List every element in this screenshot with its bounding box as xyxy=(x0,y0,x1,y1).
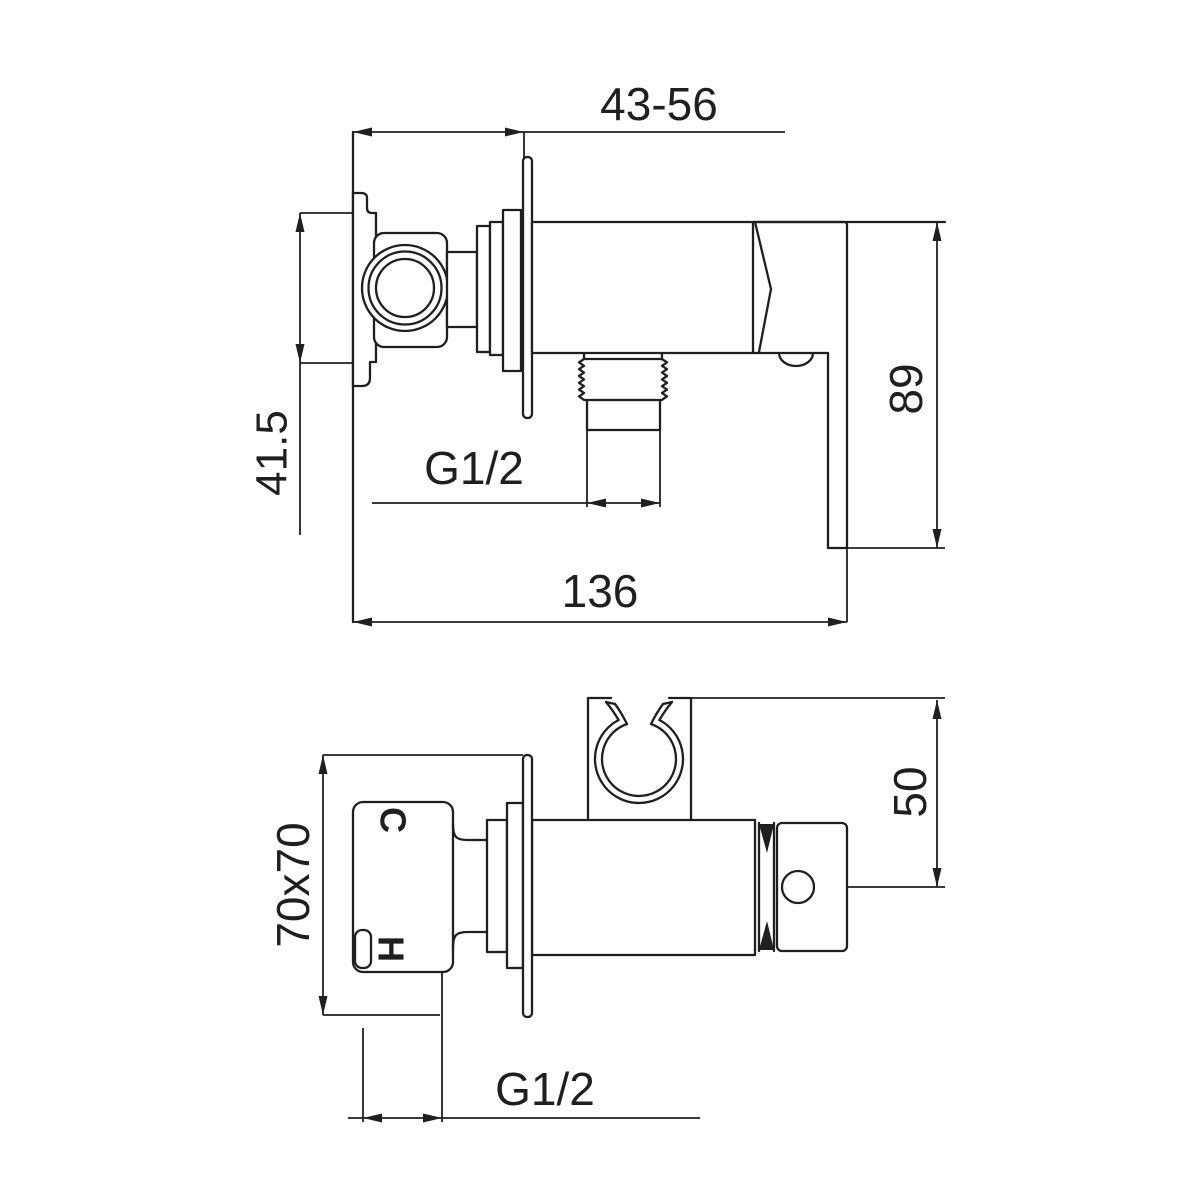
dim-outlet-thread-label: G1/2 xyxy=(424,442,524,494)
side-view: 43-56 xyxy=(248,78,946,627)
holder-post-left xyxy=(588,698,611,820)
dim-depth-range: 43-56 xyxy=(353,78,785,158)
plate-notch-top xyxy=(453,824,487,840)
outlet-pipe xyxy=(579,353,667,430)
cone-joint xyxy=(759,823,774,951)
valve-rosette xyxy=(362,245,448,331)
mixer-body xyxy=(532,222,753,353)
dim-outlet-thread: G1/2 xyxy=(372,430,660,508)
thread-teeth-right xyxy=(662,359,667,400)
dim-handle-height-label: 89 xyxy=(880,363,932,414)
dim-rough-in-height-label: 41.5 xyxy=(248,410,297,496)
plate-notch-bottom xyxy=(453,932,487,948)
dim-depth-range-label: 43-56 xyxy=(600,78,718,130)
dim-inlet-thread-label: G1/2 xyxy=(495,1063,595,1115)
hot-port-label: H xyxy=(371,936,412,962)
cold-port-label: C xyxy=(373,807,414,833)
holder-post-right xyxy=(669,698,691,820)
flange-disc xyxy=(503,210,521,371)
connection-neck xyxy=(447,252,477,327)
front-view: C H xyxy=(267,698,945,1123)
wall-plate-edge xyxy=(523,755,532,1017)
handle-seam xyxy=(755,222,771,352)
handle-button xyxy=(782,871,814,903)
flange-ring-outer xyxy=(490,222,503,355)
flange-ring-inner-front xyxy=(487,820,507,952)
holder-clip-inner xyxy=(602,724,676,796)
technical-drawing: 43-56 xyxy=(0,0,1200,1200)
plate-slot-detail xyxy=(355,930,371,968)
flange-ring-outer-front xyxy=(507,803,523,968)
holder-clip-outer xyxy=(595,720,683,803)
dim-overall-length: 136 xyxy=(353,548,847,627)
dim-rough-in-height: 41.5 xyxy=(248,213,354,535)
flange-ring-inner xyxy=(477,226,490,352)
dim-wall-plate-label: 70x70 xyxy=(267,822,319,947)
thread-teeth-left xyxy=(579,359,584,400)
cover-plate-edge xyxy=(523,157,532,418)
hose-outlet-arc xyxy=(779,353,813,366)
dim-holder-offset-label: 50 xyxy=(884,766,936,817)
drawing-page: 43-56 xyxy=(0,0,1200,1200)
mixer-body-front xyxy=(532,820,755,955)
dim-handle-height: 89 xyxy=(828,222,945,548)
dim-overall-length-label: 136 xyxy=(562,565,639,617)
shower-holder xyxy=(588,698,691,820)
